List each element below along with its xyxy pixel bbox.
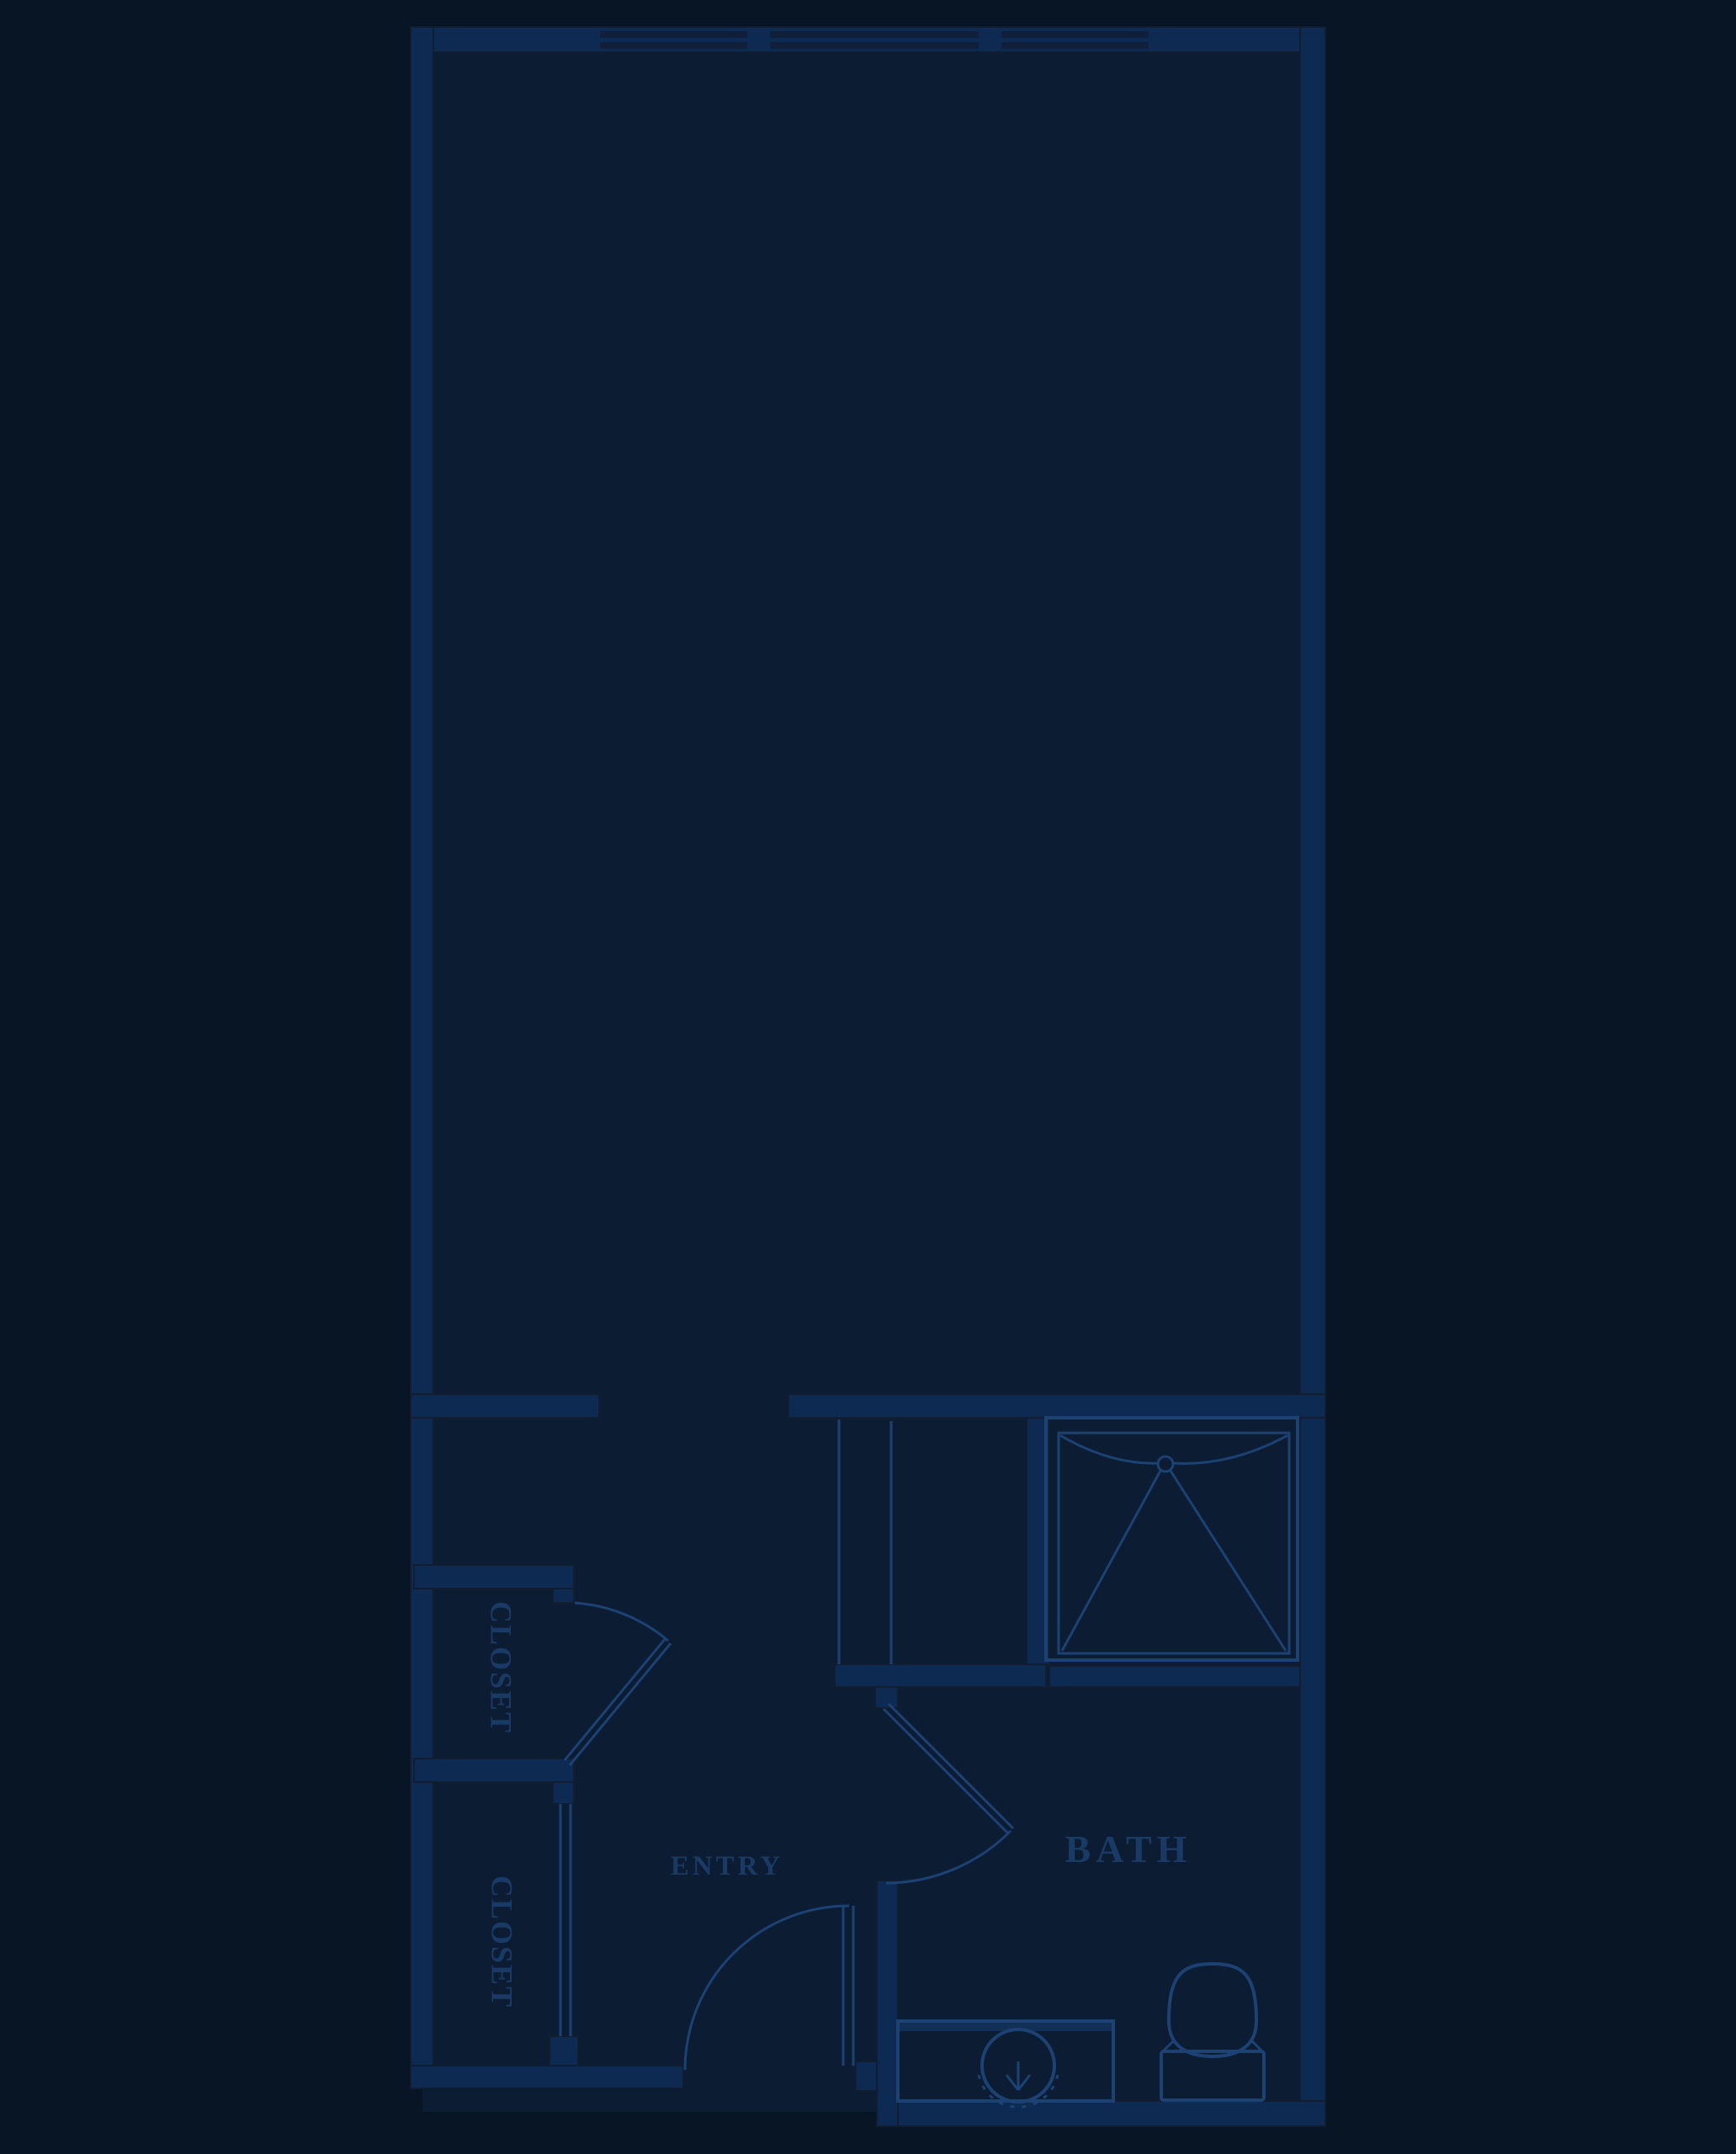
wall-stub <box>553 1782 574 1804</box>
wall-bath-left <box>877 1881 898 2126</box>
wall-mid-left <box>411 1394 599 1418</box>
wall-closet-divider-lower <box>414 1759 574 1782</box>
wall-stub <box>549 2036 578 2066</box>
floor-plan-page: CLOSET CLOSET ENTRY BATH <box>0 0 1736 2154</box>
wall-bottom-left <box>411 2066 683 2088</box>
wall-entry-hinge-block <box>856 2061 878 2091</box>
wall-under-linen <box>835 1664 1046 1687</box>
bath-label: BATH <box>1065 1828 1192 1870</box>
wall-right <box>1300 27 1325 2126</box>
wall-mid-right <box>788 1394 1325 1418</box>
wall-stub <box>553 1589 574 1603</box>
wall-bottom-bath <box>898 2101 1325 2126</box>
wall-closet-divider-upper <box>414 1565 574 1589</box>
entry-label: ENTRY <box>671 1851 783 1881</box>
closet-lower-label: CLOSET <box>486 1875 519 2008</box>
wall-bath-door-stub <box>875 1687 898 1708</box>
closet-upper-label: CLOSET <box>485 1601 518 1734</box>
floor-plan: CLOSET CLOSET ENTRY BATH <box>0 0 1736 2154</box>
shower-curb <box>1049 1666 1300 1687</box>
